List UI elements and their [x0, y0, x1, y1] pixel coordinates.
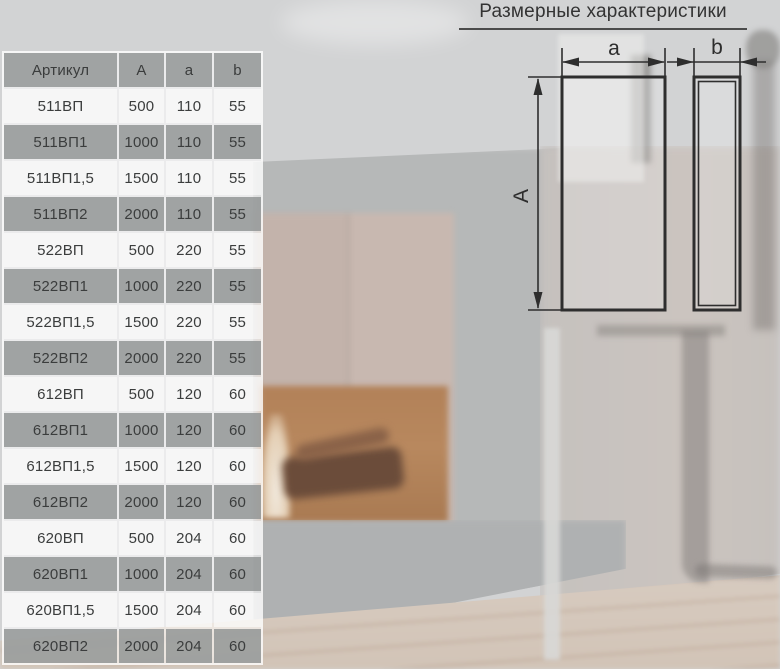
- value-cell: 500: [119, 521, 164, 555]
- value-cell: 120: [166, 377, 212, 411]
- article-cell: 612ВП1: [4, 413, 117, 447]
- value-cell: 1000: [119, 125, 164, 159]
- article-cell: 522ВП: [4, 233, 117, 267]
- column-header-A: A: [119, 53, 164, 87]
- value-cell: 204: [166, 593, 212, 627]
- value-cell: 55: [214, 89, 261, 123]
- side-view-rect: [694, 77, 740, 310]
- spec-table: Артикул A a b 511ВП50011055511ВП11000110…: [2, 51, 263, 665]
- value-cell: 60: [214, 449, 261, 483]
- value-cell: 2000: [119, 485, 164, 519]
- article-cell: 620ВП1: [4, 557, 117, 591]
- value-cell: 55: [214, 233, 261, 267]
- value-cell: 60: [214, 593, 261, 627]
- value-cell: 120: [166, 449, 212, 483]
- value-cell: 120: [166, 485, 212, 519]
- article-cell: 522ВП2: [4, 341, 117, 375]
- value-cell: 1000: [119, 557, 164, 591]
- article-cell: 511ВП1: [4, 125, 117, 159]
- value-cell: 60: [214, 629, 261, 663]
- value-cell: 55: [214, 161, 261, 195]
- arrowhead-left-icon: [562, 58, 579, 67]
- value-cell: 220: [166, 341, 212, 375]
- value-cell: 500: [119, 89, 164, 123]
- value-cell: 2000: [119, 629, 164, 663]
- value-cell: 220: [166, 305, 212, 339]
- value-cell: 110: [166, 125, 212, 159]
- value-cell: 110: [166, 161, 212, 195]
- article-cell: 522ВП1,5: [4, 305, 117, 339]
- column-header-a: a: [166, 53, 212, 87]
- arrowhead-up-icon: [534, 78, 543, 95]
- value-cell: 55: [214, 269, 261, 303]
- value-cell: 500: [119, 377, 164, 411]
- dimension-label-a: a: [601, 36, 627, 62]
- value-cell: 1000: [119, 269, 164, 303]
- value-cell: 55: [214, 125, 261, 159]
- value-cell: 204: [166, 557, 212, 591]
- page: Размерные характеристики: [0, 0, 780, 669]
- value-cell: 1500: [119, 305, 164, 339]
- value-cell: 60: [214, 557, 261, 591]
- column-header-article: Артикул: [4, 53, 117, 87]
- value-cell: 120: [166, 413, 212, 447]
- value-cell: 220: [166, 233, 212, 267]
- value-cell: 55: [214, 341, 261, 375]
- dimension-label-b: b: [704, 35, 730, 61]
- value-cell: 2000: [119, 197, 164, 231]
- value-cell: 500: [119, 233, 164, 267]
- value-cell: 2000: [119, 341, 164, 375]
- value-cell: 1000: [119, 413, 164, 447]
- value-cell: 60: [214, 521, 261, 555]
- arrowhead-left-icon: [740, 58, 757, 67]
- value-cell: 60: [214, 377, 261, 411]
- article-cell: 612ВП: [4, 377, 117, 411]
- article-cell: 620ВП2: [4, 629, 117, 663]
- article-cell: 612ВП1,5: [4, 449, 117, 483]
- value-cell: 55: [214, 197, 261, 231]
- article-cell: 511ВП2: [4, 197, 117, 231]
- value-cell: 1500: [119, 593, 164, 627]
- article-cell: 511ВП1,5: [4, 161, 117, 195]
- value-cell: 110: [166, 197, 212, 231]
- value-cell: 55: [214, 305, 261, 339]
- arrowhead-right-icon: [677, 58, 694, 67]
- value-cell: 60: [214, 413, 261, 447]
- article-cell: 511ВП: [4, 89, 117, 123]
- value-cell: 204: [166, 521, 212, 555]
- article-cell: 612ВП2: [4, 485, 117, 519]
- column-header-b: b: [214, 53, 261, 87]
- value-cell: 204: [166, 629, 212, 663]
- value-cell: 110: [166, 89, 212, 123]
- article-cell: 620ВП1,5: [4, 593, 117, 627]
- arrowhead-right-icon: [648, 58, 665, 67]
- dimension-label-A: A: [509, 183, 535, 209]
- value-cell: 1500: [119, 449, 164, 483]
- article-cell: 620ВП: [4, 521, 117, 555]
- value-cell: 1500: [119, 161, 164, 195]
- value-cell: 220: [166, 269, 212, 303]
- value-cell: 60: [214, 485, 261, 519]
- article-cell: 522ВП1: [4, 269, 117, 303]
- front-view-rect: [562, 77, 665, 310]
- arrowhead-down-icon: [534, 292, 543, 309]
